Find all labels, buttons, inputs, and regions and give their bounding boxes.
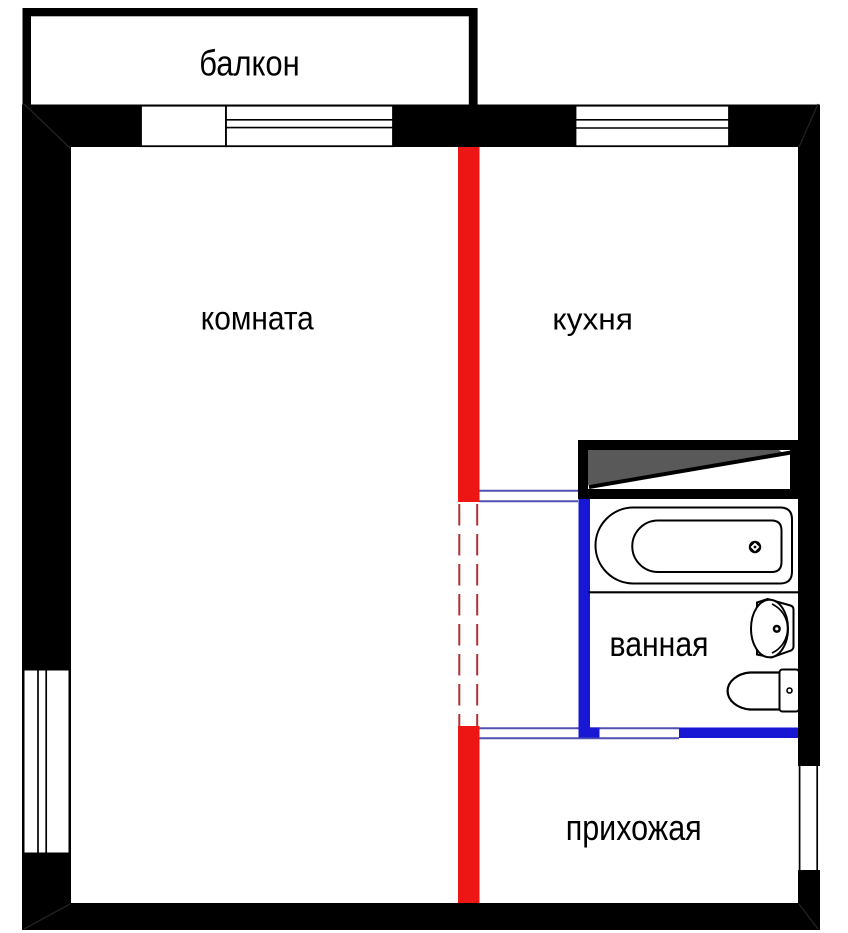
svg-text:кухня: кухня bbox=[552, 302, 633, 337]
svg-text:ванная: ванная bbox=[610, 625, 709, 664]
svg-text:балкон: балкон bbox=[199, 42, 300, 83]
svg-text:прихожая: прихожая bbox=[566, 807, 702, 848]
svg-text:комната: комната bbox=[201, 301, 314, 338]
